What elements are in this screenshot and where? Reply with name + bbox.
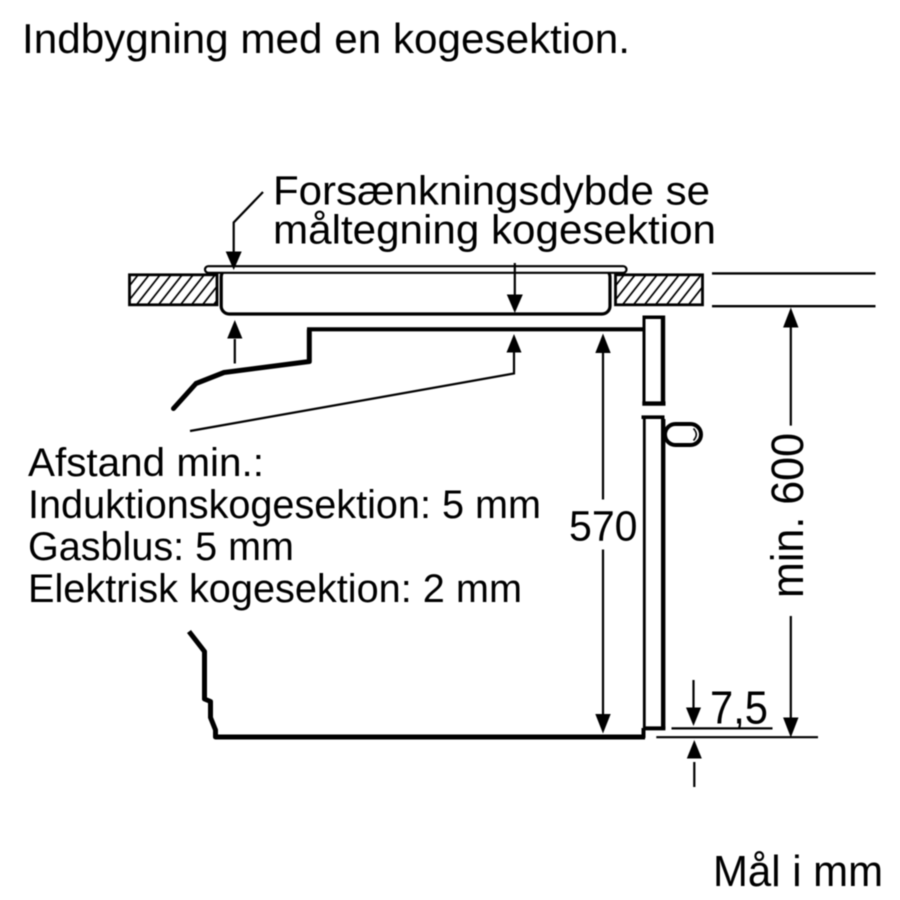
svg-text:Induktionskogesektion: 5 mm: Induktionskogesektion: 5 mm (28, 483, 541, 527)
svg-text:Afstand min.:: Afstand min.: (28, 441, 264, 485)
svg-text:Indbygning med en kogesektion.: Indbygning med en kogesektion. (22, 15, 630, 62)
svg-text:7,5: 7,5 (710, 681, 768, 733)
svg-text:570: 570 (569, 503, 638, 551)
svg-text:Gasblus: 5 mm: Gasblus: 5 mm (28, 525, 294, 569)
svg-text:min. 600: min. 600 (762, 433, 813, 598)
svg-text:Elektrisk kogesektion: 2 mm: Elektrisk kogesektion: 2 mm (28, 567, 522, 611)
svg-text:måltegning kogesektion: måltegning kogesektion (273, 207, 716, 253)
svg-text:Mål i mm: Mål i mm (713, 847, 883, 896)
